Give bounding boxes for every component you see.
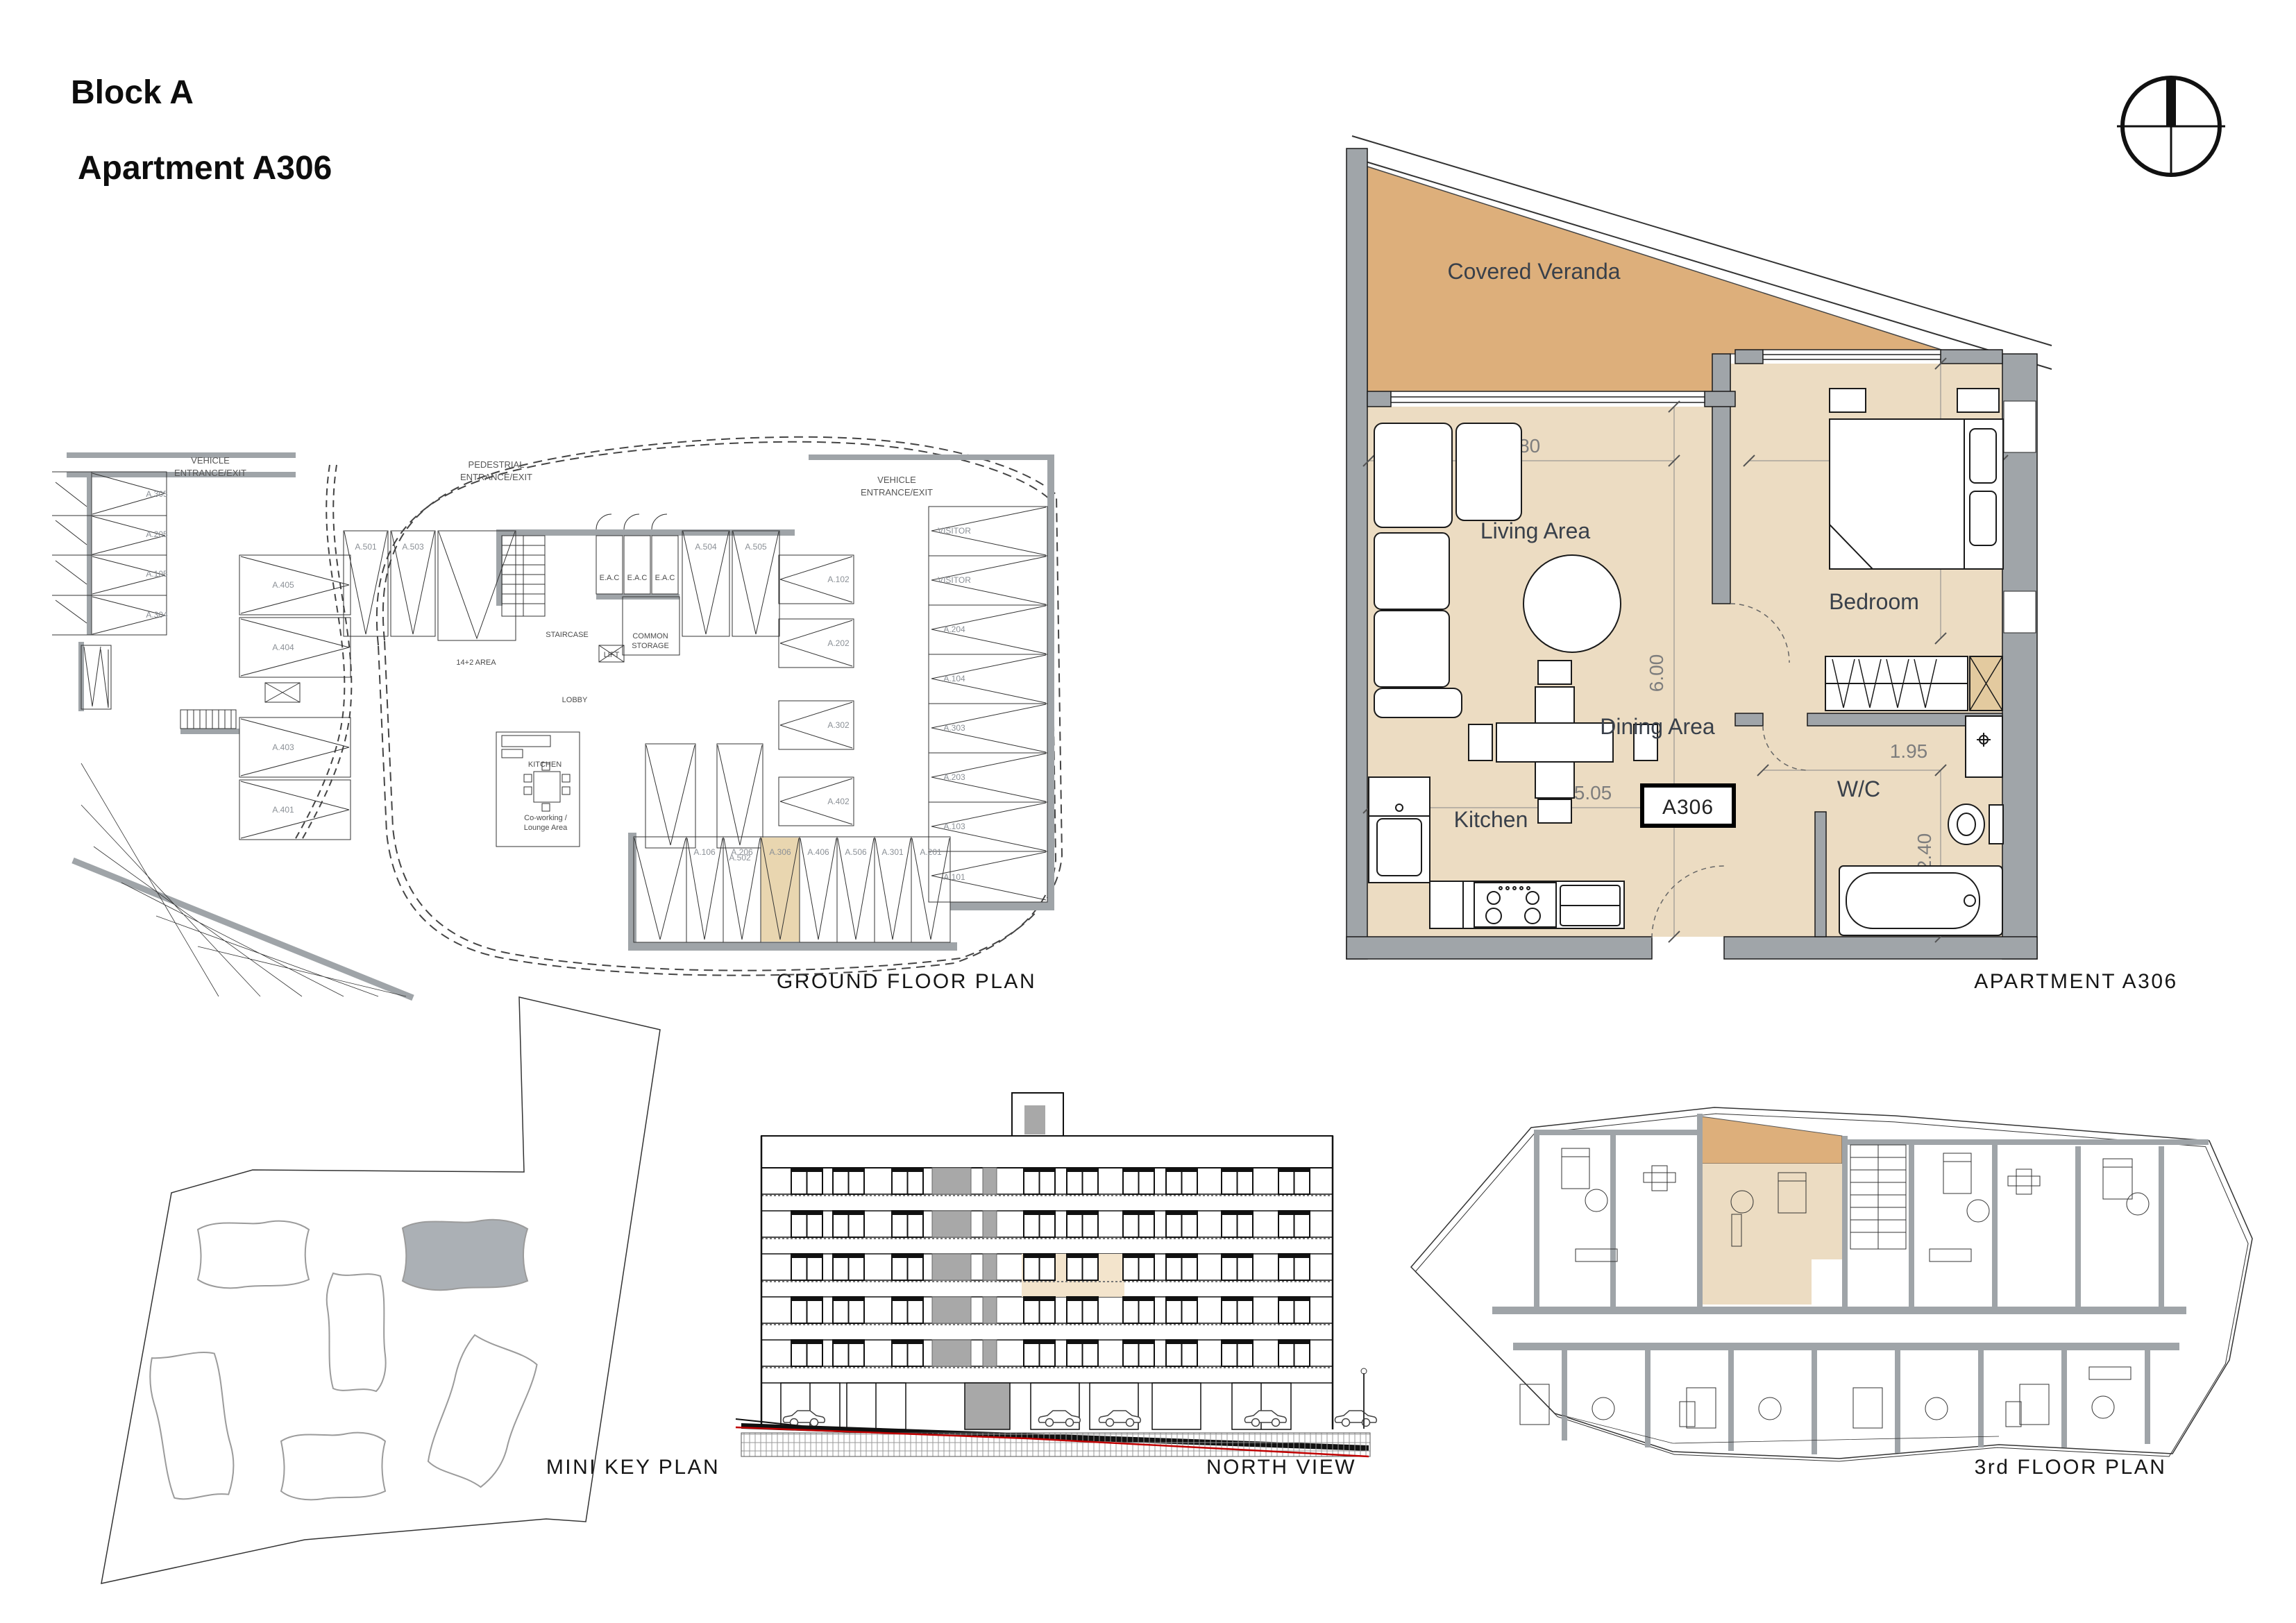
stall-label: A.403 xyxy=(272,742,294,752)
site-buildings xyxy=(146,1220,542,1503)
stall-label: A.303 xyxy=(943,723,965,733)
stall-label: A.503 xyxy=(402,542,424,552)
dim-hall-width: 5.05 xyxy=(1574,782,1612,804)
shaft-box xyxy=(1970,656,2002,711)
stalls-right-column xyxy=(929,507,1047,902)
stall-label: A.206 xyxy=(731,847,753,857)
stall-label: A.205 xyxy=(146,529,168,539)
label-kitchen: Kitchen xyxy=(1454,807,1528,832)
caption-apartment: APARTMENT A306 xyxy=(1974,970,2177,994)
drawing-sheet: Block A Apartment A306 GROUND FLOOR PLAN… xyxy=(0,0,2296,1623)
stall-label: A.106 xyxy=(693,847,716,857)
stall-label: A.103 xyxy=(943,822,965,831)
site-boundary-dashed xyxy=(377,437,1062,976)
stall-label: A.402 xyxy=(827,797,850,806)
eac-label: E.A.C xyxy=(627,574,648,582)
eac-label: E.A.C xyxy=(655,574,675,582)
stall-label: A.101 xyxy=(943,872,965,882)
north-view-elevation xyxy=(736,1072,1374,1461)
retaining-wall xyxy=(73,860,413,998)
parapet xyxy=(761,1136,1333,1168)
common-storage-label: COMMON xyxy=(632,632,668,640)
stall-label: A.404 xyxy=(272,643,294,652)
round-rug xyxy=(1523,555,1621,652)
label-wc: W/C xyxy=(1837,776,1880,801)
stall-label: A.501 xyxy=(355,542,377,552)
lobby-label: LOBBY xyxy=(562,696,588,704)
kitchen-label: KITCHEN xyxy=(528,760,562,769)
ramp-dashed xyxy=(295,465,351,840)
stall-label: A.202 xyxy=(827,638,850,648)
stall-label: A.305 xyxy=(146,489,168,499)
stall-label: VISITOR xyxy=(938,526,971,536)
elevation-building xyxy=(761,1093,1376,1429)
label-bedroom: Bedroom xyxy=(1829,589,1919,614)
pedestrian-entrance-label: ENTRANCE/EXIT xyxy=(460,472,532,482)
stall-label: A.505 xyxy=(745,542,767,552)
ground-floor-openings xyxy=(781,1383,1291,1429)
ground-floor-plan: A.305 A.205 A.105 A.304 A.501 A.503 A.50… xyxy=(52,416,1065,1006)
stall-label: A.405 xyxy=(272,580,294,590)
apartment-plan: 3.80 3.20 6.00 3.40 1.95 2.40 5.05 xyxy=(1347,125,2054,965)
staircase-label: STAIRCASE xyxy=(546,631,589,639)
stall-label: A.102 xyxy=(827,575,850,584)
coworking-label: Co-working / xyxy=(524,814,568,822)
vehicle-entrance-label-2: VEHICLE xyxy=(877,475,916,485)
stalls-a502 xyxy=(645,744,763,848)
a306-veranda-highlight xyxy=(1701,1116,1842,1164)
lift-label: LIFT xyxy=(604,651,620,659)
stalls-mid-column xyxy=(239,555,351,840)
pedestrian-entrance-label: PEDESTRIAL xyxy=(469,459,525,470)
dim-living-depth: 6.00 xyxy=(1646,654,1667,692)
label-living: Living Area xyxy=(1480,518,1591,543)
stall-label: A.406 xyxy=(807,847,829,857)
stall-label: A.306 xyxy=(769,847,791,857)
north-compass-icon xyxy=(2110,66,2235,191)
vehicle-entrance-label: ENTRANCE/EXIT xyxy=(174,468,246,478)
unit-tag-box: A306 xyxy=(1642,785,1734,826)
page-subtitle: Apartment A306 xyxy=(78,149,332,187)
stalls-inner-column xyxy=(779,555,854,826)
block-a-highlight xyxy=(403,1220,527,1290)
stall-label: A.204 xyxy=(943,624,965,634)
label-veranda: Covered Veranda xyxy=(1447,259,1620,284)
stall-label: A.304 xyxy=(146,610,168,620)
stall-label: A.504 xyxy=(695,542,717,552)
stall-label: A.201 xyxy=(920,847,942,857)
area-label: 14+2 AREA xyxy=(456,658,496,667)
garage-walls xyxy=(67,452,1054,951)
stall-label: A.302 xyxy=(827,720,850,730)
stall-label: VISITOR xyxy=(938,575,971,585)
eac-label: E.A.C xyxy=(600,574,620,582)
wardrobe xyxy=(1825,656,1968,711)
a306-unit-highlight xyxy=(1701,1164,1842,1305)
page-title: Block A xyxy=(71,74,194,112)
stair-core xyxy=(1850,1145,1906,1249)
dim-wc-width: 1.95 xyxy=(1890,740,1928,762)
coworking-label: Lounge Area xyxy=(524,824,568,832)
stalls-bottom-row: A.106 A.206 A.306 A.406 A.506 A.301 A.20… xyxy=(634,837,950,942)
label-dining: Dining Area xyxy=(1600,714,1715,739)
building-core xyxy=(496,514,679,847)
stall-label: A.105 xyxy=(146,569,168,579)
stall-label: A.203 xyxy=(943,772,965,782)
side-structures xyxy=(81,645,406,996)
stall-label: A.104 xyxy=(943,674,965,683)
mini-key-plan xyxy=(69,992,736,1603)
common-storage-label: STORAGE xyxy=(632,642,669,650)
vehicle-entrance-label-2: ENTRANCE/EXIT xyxy=(861,487,933,498)
unit-tag: A306 xyxy=(1662,796,1714,819)
third-floor-plan xyxy=(1353,1041,2296,1471)
roof-door xyxy=(1024,1105,1045,1135)
stall-label: A.401 xyxy=(272,805,294,815)
stall-label: A.301 xyxy=(881,847,904,857)
stall-label: A.506 xyxy=(845,847,867,857)
vehicle-entrance-label: VEHICLE xyxy=(191,455,230,466)
